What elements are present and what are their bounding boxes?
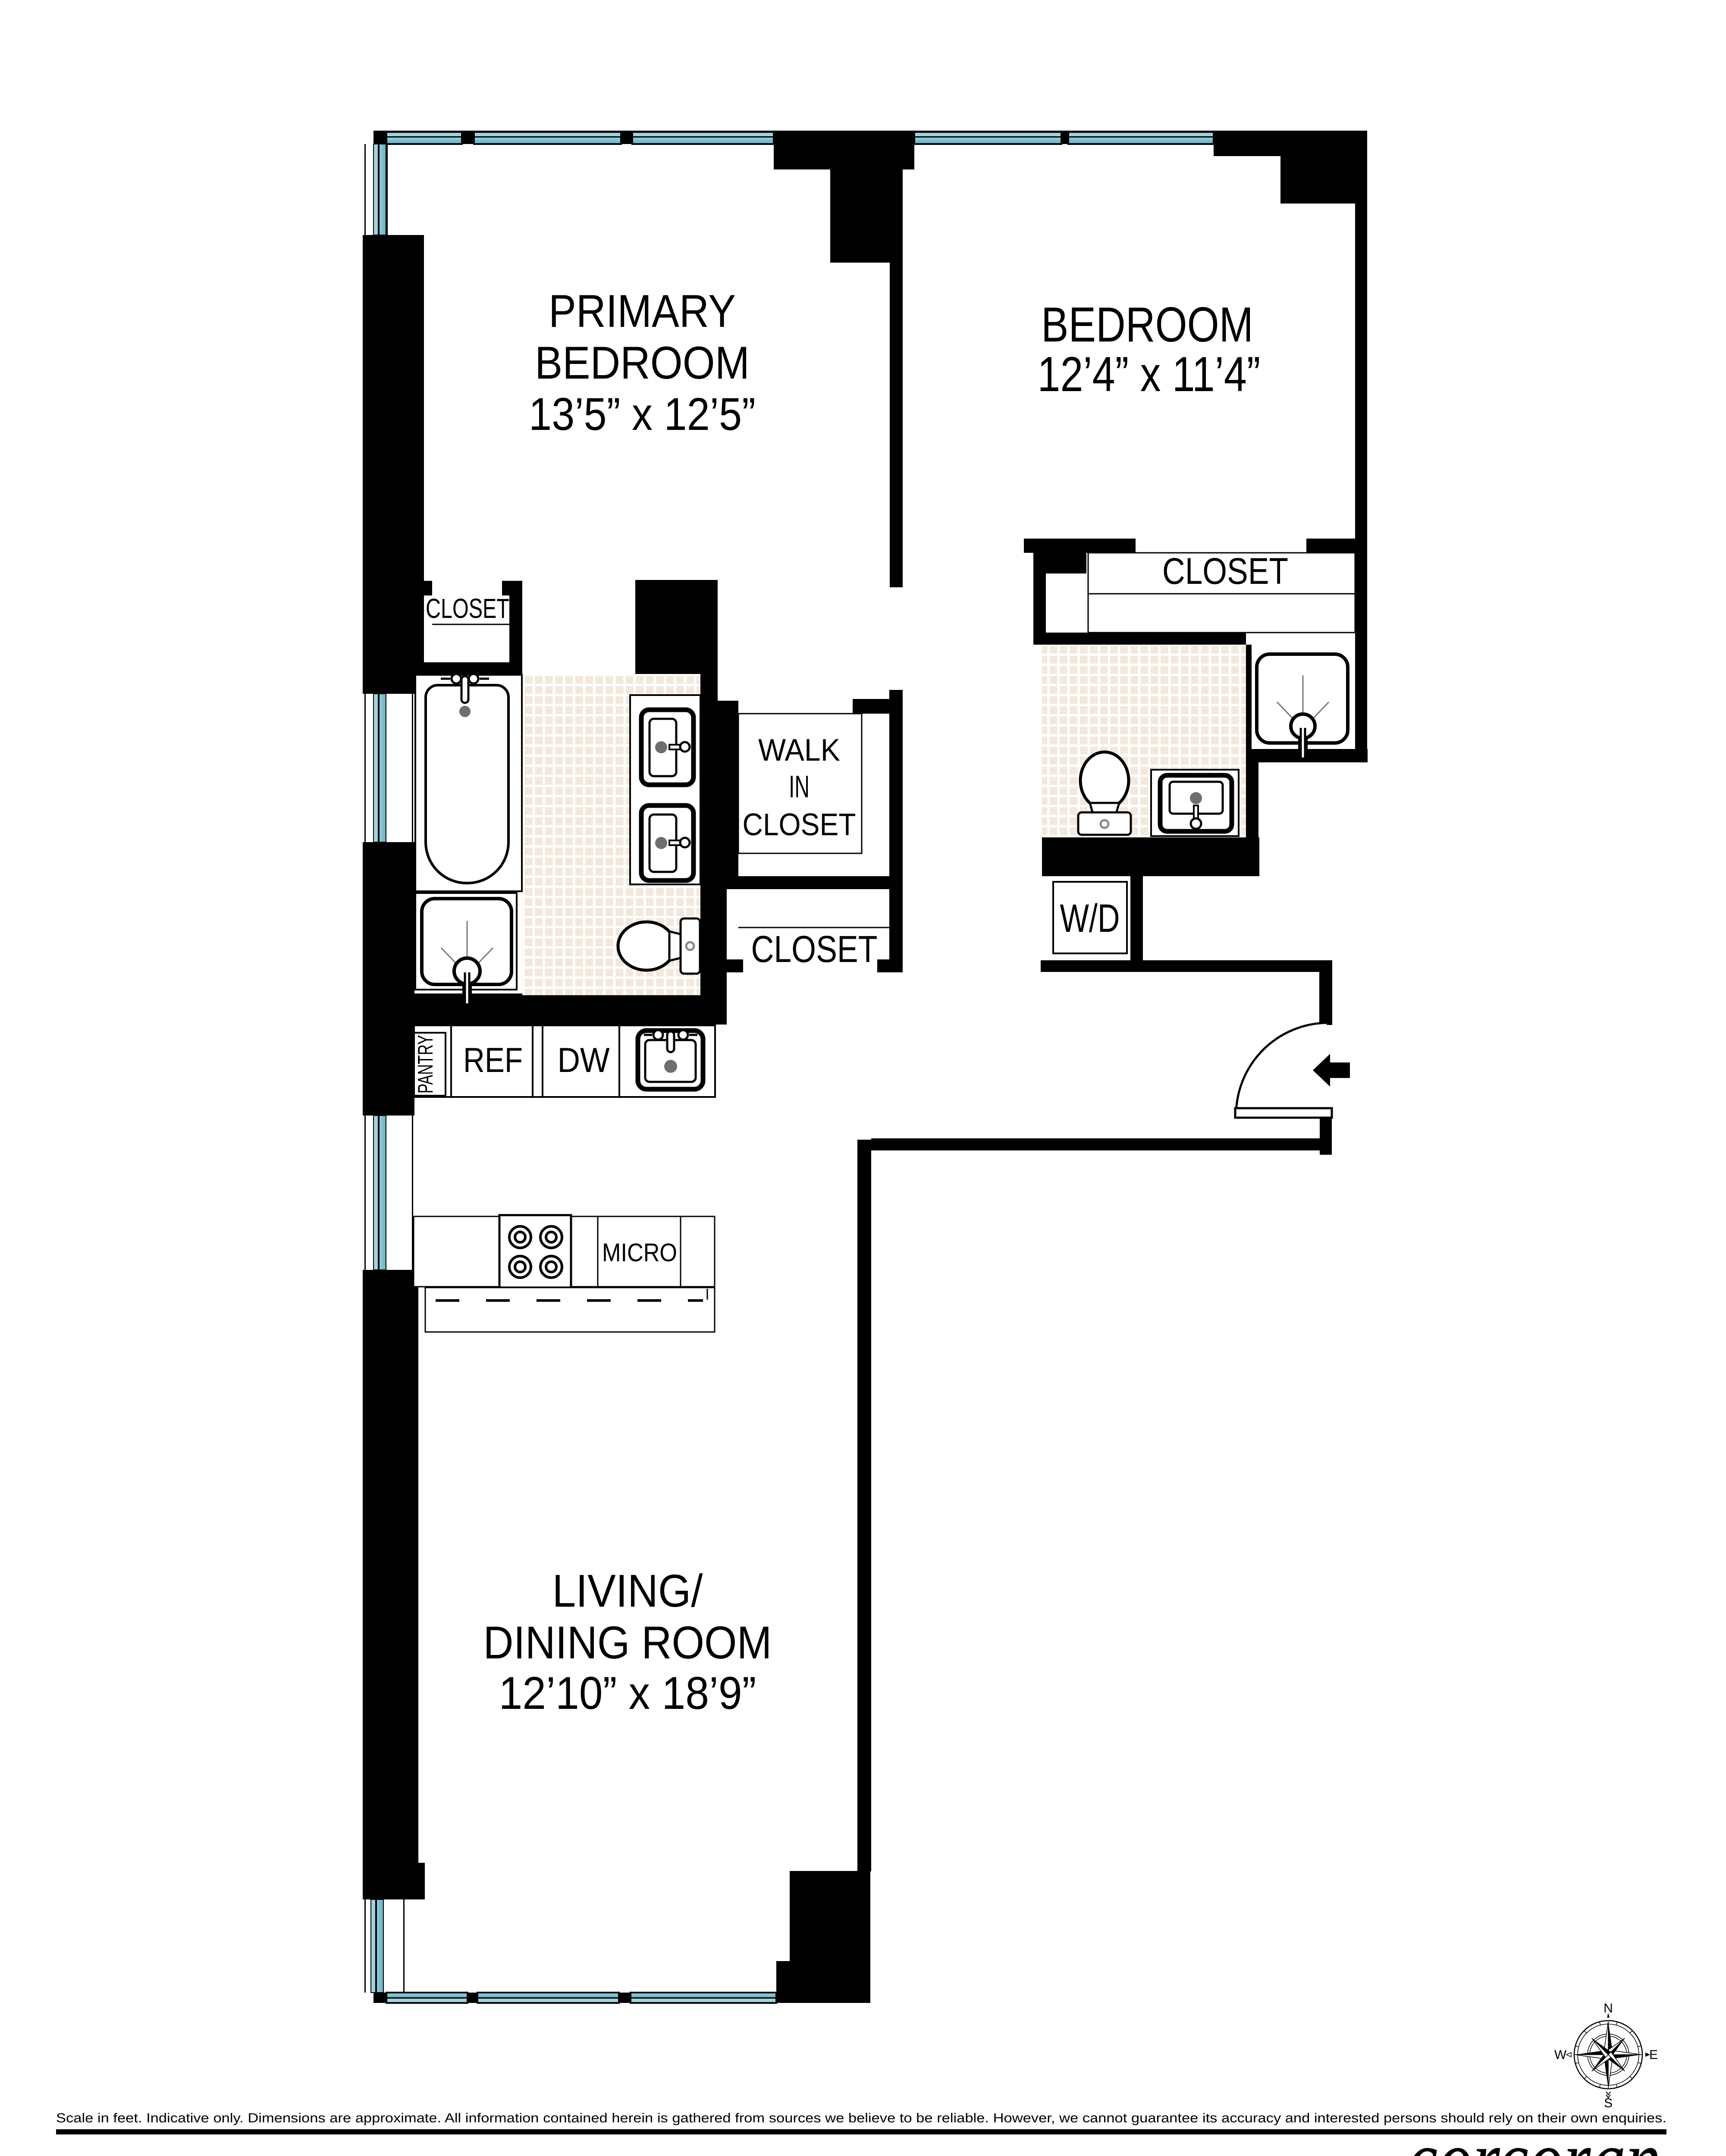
svg-text:W: W xyxy=(1554,2048,1567,2062)
svg-text:DW: DW xyxy=(558,1041,610,1080)
svg-text:CLOSET: CLOSET xyxy=(426,593,509,624)
svg-text:IN: IN xyxy=(789,770,810,804)
svg-text:BEDROOM: BEDROOM xyxy=(535,337,750,389)
svg-text:CLOSET: CLOSET xyxy=(751,928,878,970)
svg-text:13’5” x 12’5”: 13’5” x 12’5” xyxy=(529,388,756,440)
svg-text:PRIMARY: PRIMARY xyxy=(549,285,736,337)
svg-text:39 East 29th Street, Apt 27A: 39 East 29th Street, Apt 27A xyxy=(60,2153,491,2156)
svg-text:12’10” x 18’9”: 12’10” x 18’9” xyxy=(499,1667,756,1719)
svg-text:DINING ROOM: DINING ROOM xyxy=(483,1617,772,1668)
svg-text:corcoran: corcoran xyxy=(1406,2111,1661,2156)
svg-text:REF: REF xyxy=(463,1041,523,1080)
svg-text:PANTRY: PANTRY xyxy=(414,1035,437,1094)
svg-text:CLOSET: CLOSET xyxy=(743,808,856,842)
svg-text:E: E xyxy=(1649,2048,1658,2062)
svg-text:WALK: WALK xyxy=(758,733,840,768)
svg-text:LIVING/: LIVING/ xyxy=(552,1565,703,1617)
svg-text:CLOSET: CLOSET xyxy=(1162,551,1288,592)
svg-text:W/D: W/D xyxy=(1060,896,1120,940)
svg-text:12’4” x 11’4”: 12’4” x 11’4” xyxy=(1038,347,1261,402)
svg-text:MICRO: MICRO xyxy=(602,1238,677,1267)
svg-text:BEDROOM: BEDROOM xyxy=(1041,298,1253,352)
